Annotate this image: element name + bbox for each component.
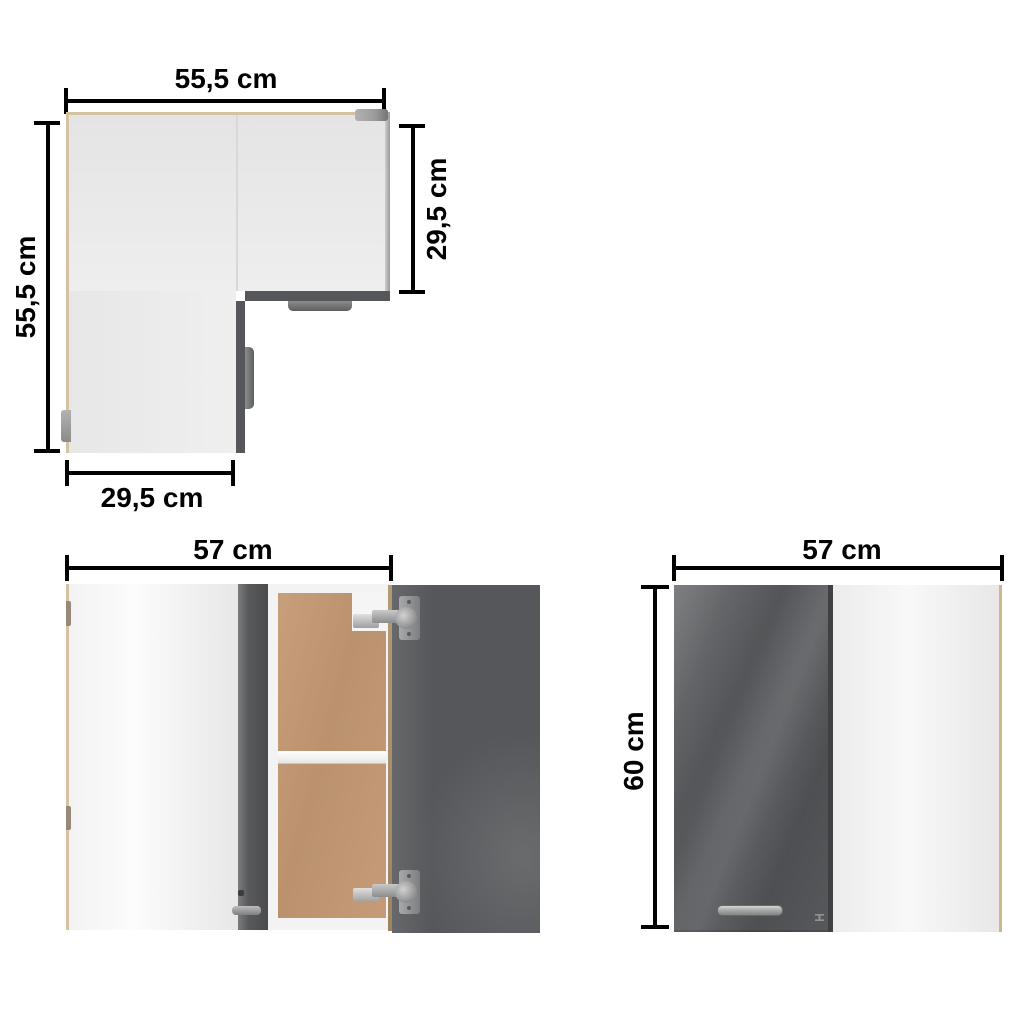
open-view-side-panel-white [66, 584, 238, 930]
closed-view-height-dim-line [653, 585, 657, 929]
open-view-left-edge-hinge-mark-bottom [66, 806, 71, 830]
open-view-left-door-handle [232, 906, 261, 915]
corner-wall-cabinet-dimension-diagram: 55,5 cm 55,5 cm 29,5 cm 29,5 cm 57 cm 27… [0, 0, 1024, 1024]
top-view-right-dim-line [411, 124, 415, 294]
closed-view-width-dim-label: 57 cm [742, 535, 942, 565]
top-view-edge-tan-top [66, 112, 390, 115]
top-view-cabinet [66, 112, 390, 453]
bottom-hinge-cup [395, 881, 417, 903]
top-view-right-dim-label: 29,5 cm [422, 109, 452, 309]
top-view-edge-right [385, 112, 390, 291]
closed-view-edge-tan-right [999, 585, 1002, 932]
closed-view-side-panel-white [833, 585, 1002, 932]
bottom-hinge-screw-lower [407, 906, 411, 910]
closed-view-height-dim-tick-bottom [641, 925, 669, 929]
top-view-bottom-dim-label: 29,5 cm [52, 483, 252, 513]
top-hinge-screw-upper [407, 600, 411, 604]
top-view-edge-tan-left [66, 112, 69, 453]
closed-view-bottom-shadow [674, 930, 828, 932]
open-view-left-door-edge-on [238, 584, 268, 930]
top-view-door-front-left-wing [236, 301, 245, 453]
closed-view-door-handle [718, 906, 782, 915]
open-view-width-dim-label: 57 cm [133, 535, 333, 565]
top-hinge-screw-lower [407, 632, 411, 636]
bottom-hinge-screw-upper [407, 874, 411, 878]
closed-view-height-dim-label: 60 cm [619, 651, 649, 851]
open-view-width-dim-line [67, 566, 393, 570]
top-view-hinge-top-right [355, 109, 388, 121]
top-view-depth-dim-tick-top [34, 121, 60, 125]
open-view-edge-tan-left [66, 584, 69, 930]
top-view-depth-dim-line [46, 121, 50, 453]
closed-view-cabinet [674, 585, 1002, 932]
top-view-depth-dim-label: 55,5 cm [11, 187, 41, 387]
closed-view-width-dim-tick-left [672, 555, 676, 581]
top-view-corner-post [236, 291, 245, 301]
top-view-carcass-top-wing [66, 112, 390, 291]
open-view-left-edge-hinge-mark-top [66, 601, 71, 626]
top-view-width-dim-line [66, 99, 386, 103]
open-view-cabinet [66, 584, 540, 933]
top-view-hinge-bottom-left [61, 410, 71, 442]
closed-view-width-dim-line [674, 566, 1002, 570]
top-view-width-dim-tick-left [64, 88, 68, 114]
top-hinge-cup [395, 607, 417, 629]
closed-view-width-dim-tick-right [1000, 555, 1004, 581]
closed-view-height-dim-tick-top [641, 585, 669, 589]
top-view-panel-divider [236, 115, 238, 291]
open-view-middle-shelf [278, 751, 386, 764]
top-view-bottom-dim-line [67, 471, 235, 475]
open-view-left-door-screw [238, 890, 244, 896]
open-view-width-dim-tick-right [389, 555, 393, 581]
open-view-interior [268, 584, 392, 930]
top-view-handle-right-wing [288, 301, 352, 311]
closed-view-door-screw-cap [815, 908, 824, 915]
top-view-door-front-right-wing [245, 291, 390, 301]
open-view-width-dim-tick-left [65, 555, 69, 581]
top-view-width-dim-label: 55,5 cm [126, 64, 326, 94]
screw-cap-icon [815, 914, 824, 921]
closed-view-door-gloss-reflection [674, 585, 828, 932]
top-view-handle-left-wing [245, 347, 254, 409]
top-view-depth-dim-tick-bottom [34, 449, 60, 453]
